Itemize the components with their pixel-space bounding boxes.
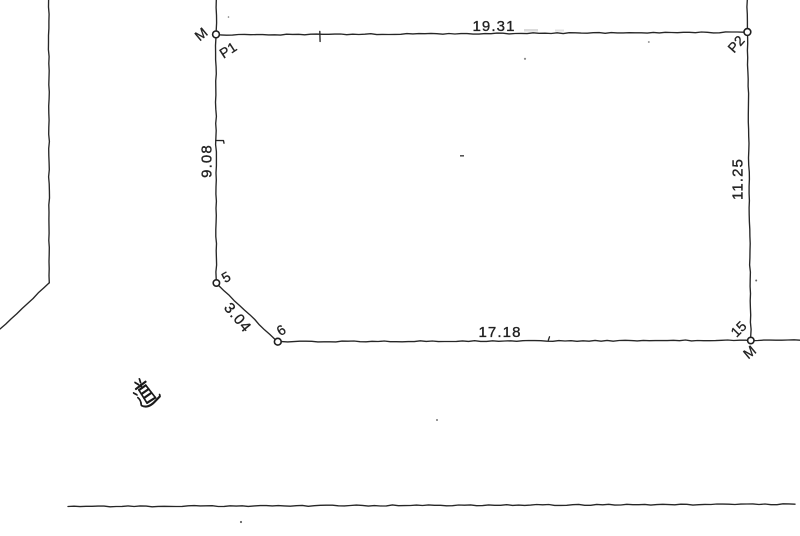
svg-text:9.08: 9.08 xyxy=(199,144,216,178)
svg-text:11.25: 11.25 xyxy=(730,158,747,200)
svg-text:17.18: 17.18 xyxy=(478,324,521,341)
svg-text:19.31: 19.31 xyxy=(472,18,515,35)
